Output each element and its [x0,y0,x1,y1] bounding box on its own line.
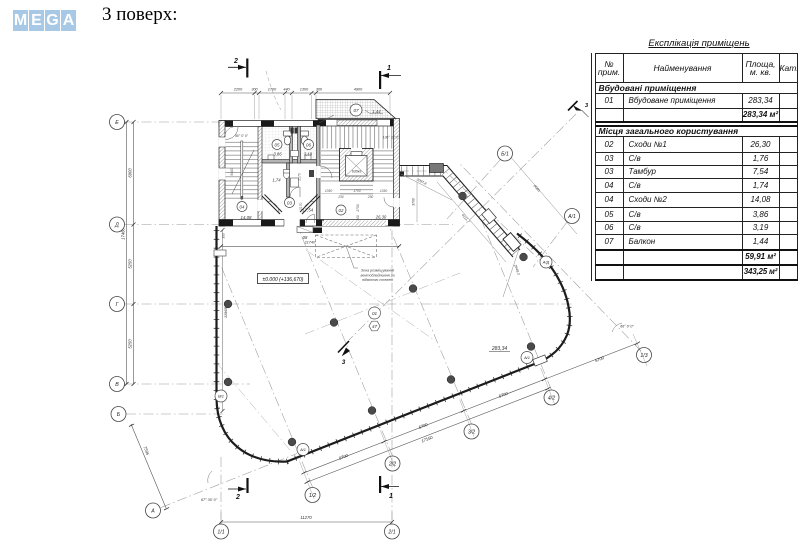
svg-text:2200: 2200 [233,87,243,91]
svg-text:11740: 11740 [305,240,316,245]
svg-text:66° 0' 0": 66° 0' 0" [620,325,634,329]
svg-text:1/2: 1/2 [309,493,316,499]
svg-text:±0.000 (+136,670): ±0.000 (+136,670) [263,277,304,283]
svg-text:1: 1 [387,65,391,72]
svg-text:1/1: 1/1 [217,530,224,536]
svg-text:В: В [115,382,119,388]
svg-text:283,34: 283,34 [491,346,508,352]
svg-text:підвісною стелею: підвісною стелею [362,278,393,282]
svg-text:250: 250 [367,195,374,199]
svg-text:07: 07 [353,108,359,113]
svg-text:А/1: А/1 [523,355,530,360]
svg-text:03: 03 [287,200,292,205]
svg-text:05: 05 [275,142,280,147]
svg-text:вентобладнання за: вентобладнання за [360,273,394,277]
svg-text:300: 300 [251,87,258,91]
svg-text:1700: 1700 [353,189,361,193]
svg-text:Зона розміщування: Зона розміщування [361,269,395,273]
svg-text:6111,7: 6111,7 [461,213,471,224]
svg-text:06: 06 [306,142,311,147]
svg-text:250: 250 [337,195,344,199]
svg-text:6900: 6900 [128,168,133,178]
svg-text:136° 32' 0": 136° 32' 0" [383,136,401,140]
svg-text:630кг: 630кг [352,170,362,174]
svg-text:2170: 2170 [298,173,302,182]
svg-text:1/3: 1/3 [640,353,647,359]
svg-text:А/1: А/1 [567,214,576,220]
svg-text:3: 3 [342,360,346,366]
svg-text:11270: 11270 [300,515,312,520]
svg-text:440: 440 [283,87,290,91]
svg-text:2170: 2170 [299,203,303,212]
svg-text:Д: Д [114,223,119,229]
svg-text:1300: 1300 [300,87,309,91]
svg-text:300: 300 [316,87,323,91]
svg-text:08: 08 [303,235,308,240]
svg-text:2750: 2750 [356,204,360,213]
svg-text:А/1: А/1 [299,447,306,452]
svg-text:3/2: 3/2 [468,430,475,436]
svg-text:14,08: 14,08 [241,215,253,220]
svg-text:5700: 5700 [498,391,509,399]
svg-text:04: 04 [240,204,245,209]
svg-text:5460: 5460 [230,168,234,176]
svg-text:8000: 8000 [533,184,541,193]
svg-text:5250: 5250 [128,339,133,349]
svg-text:90° 0' 0": 90° 0' 0" [235,134,249,138]
svg-text:47: 47 [372,324,378,329]
svg-text:3,86: 3,86 [273,152,282,157]
svg-text:А: А [150,509,155,515]
svg-text:1,74: 1,74 [272,178,281,183]
svg-text:5250: 5250 [128,259,133,269]
svg-text:01: 01 [372,311,378,316]
svg-text:26,30: 26,30 [375,215,387,220]
svg-text:3: 3 [585,103,589,109]
svg-text:7,54: 7,54 [305,208,314,213]
svg-text:4/2: 4/2 [548,396,555,402]
svg-text:2: 2 [233,58,238,65]
svg-text:1350: 1350 [325,189,333,193]
svg-text:67° 30' 0": 67° 30' 0" [201,498,218,502]
svg-text:В/1: В/1 [218,394,224,399]
svg-text:А/Д: А/Д [542,260,550,265]
svg-text:1: 1 [389,493,393,500]
svg-text:2/1: 2/1 [387,530,395,536]
svg-text:Е: Е [115,120,119,126]
svg-text:5700: 5700 [418,422,429,430]
svg-text:2/2: 2/2 [388,462,396,468]
svg-text:300: 300 [222,233,226,239]
svg-text:1700: 1700 [268,87,277,91]
svg-text:300: 300 [356,215,360,221]
svg-text:02: 02 [339,208,344,213]
svg-text:17150: 17150 [421,434,434,443]
svg-text:3,19: 3,19 [304,152,313,157]
svg-text:1350: 1350 [380,189,388,193]
svg-text:2: 2 [235,494,240,501]
svg-text:Б/1: Б/1 [501,152,509,158]
svg-text:3700: 3700 [412,198,416,206]
svg-text:2648,3: 2648,3 [513,263,521,275]
svg-text:4900: 4900 [354,87,363,91]
svg-text:1,44: 1,44 [372,109,381,114]
svg-text:5700: 5700 [338,453,349,461]
